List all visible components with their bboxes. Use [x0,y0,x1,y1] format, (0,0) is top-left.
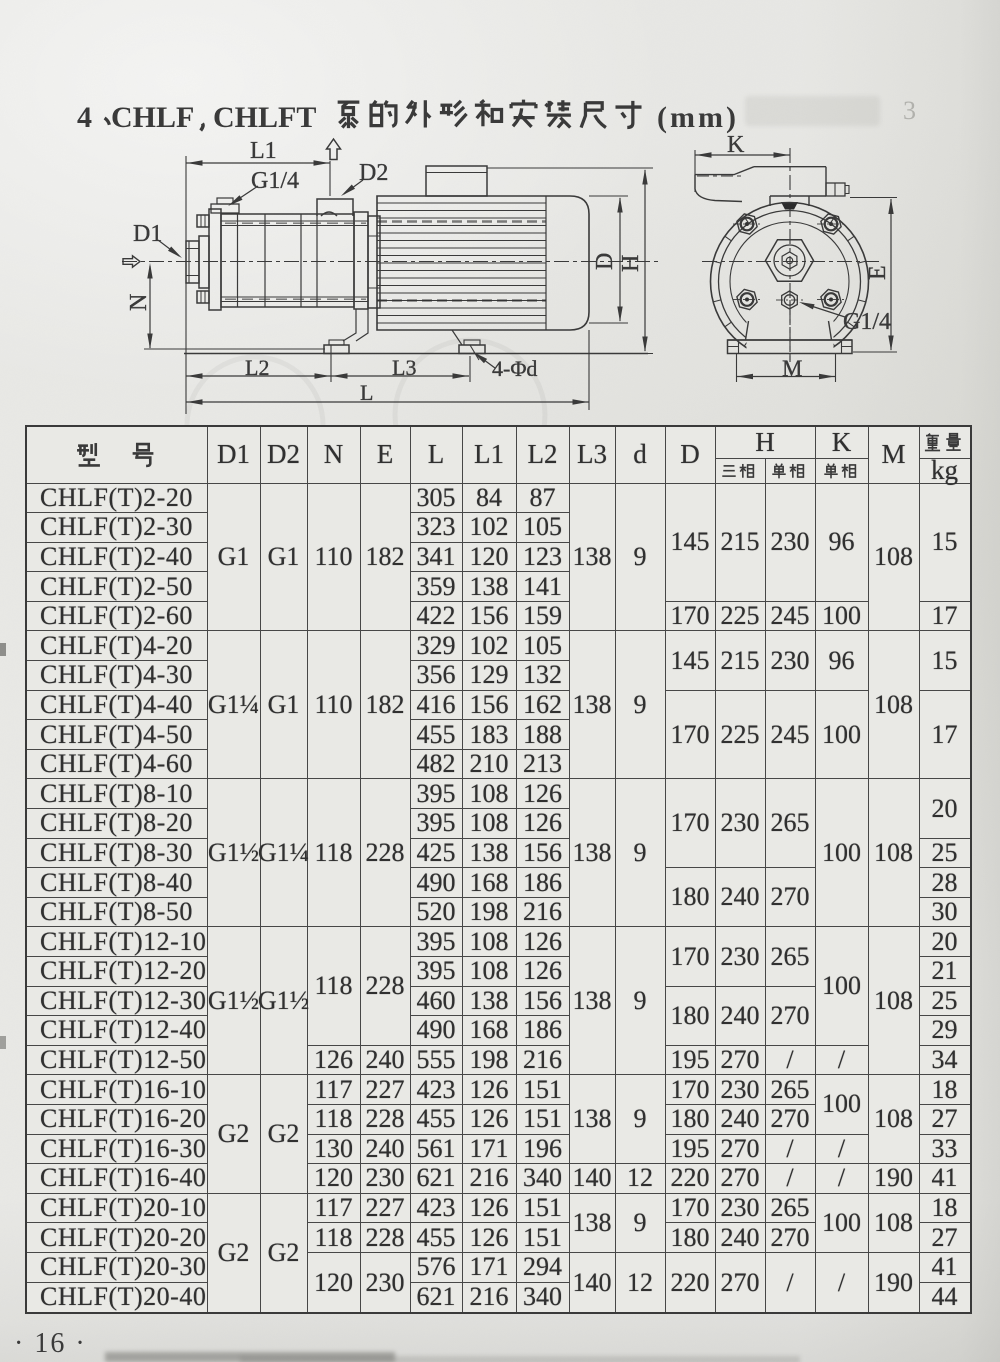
svg-text:M: M [782,356,802,381]
svg-text:D2: D2 [359,160,388,186]
svg-text:L1: L1 [250,138,277,164]
svg-text:L3: L3 [392,355,416,380]
svg-text:4: 4 [77,101,92,134]
svg-text:G1/4: G1/4 [843,309,891,335]
svg-text:D1: D1 [133,221,162,247]
svg-text:L2: L2 [245,355,269,380]
svg-text:L: L [360,380,373,405]
svg-text:K: K [727,132,745,158]
svg-text:E: E [865,265,891,280]
svg-text:4-Φd: 4-Φd [492,356,537,381]
svg-text:N: N [126,294,152,311]
svg-text:H: H [618,255,644,272]
svg-text:D: D [592,253,618,270]
svg-text:G1/4: G1/4 [251,168,299,194]
